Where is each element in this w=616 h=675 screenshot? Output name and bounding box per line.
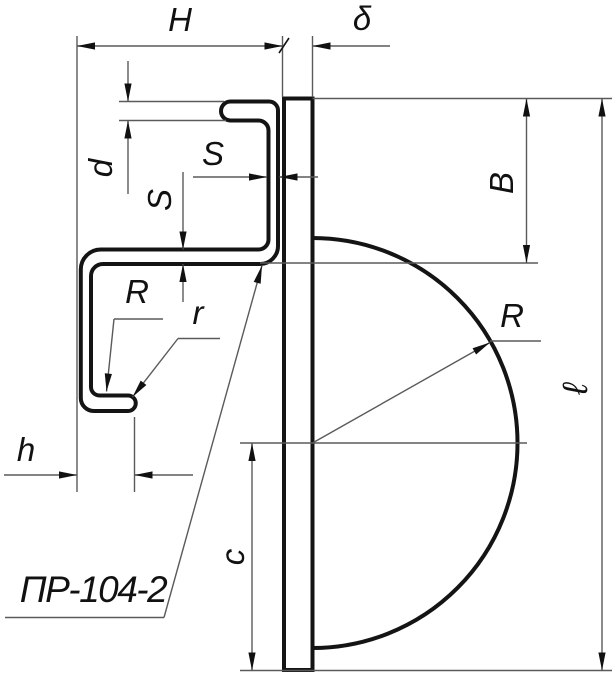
leader-R-disc: R: [313, 297, 542, 443]
mounting-plate: [284, 99, 313, 671]
drawing-sheet: H δ d S S R r h: [0, 0, 616, 675]
part-number-label: ПР-104-2: [20, 569, 168, 610]
dim-S-web: S: [193, 135, 318, 177]
profile-cross-section: [81, 102, 278, 412]
label-l: ℓ: [556, 382, 595, 396]
label-B: B: [483, 172, 520, 194]
leader-R-profile: R: [107, 273, 164, 392]
dim-delta: δ: [313, 0, 391, 97]
label-c: c: [214, 548, 251, 565]
label-S-flange: S: [141, 189, 178, 211]
label-R-profile: R: [125, 273, 149, 310]
label-r-profile: r: [193, 294, 206, 331]
dim-c: c: [214, 443, 252, 671]
label-S-web: S: [202, 135, 224, 172]
label-H: H: [168, 1, 192, 38]
dim-h: h: [4, 417, 193, 492]
leader-line: [133, 339, 179, 398]
label-d: d: [82, 157, 119, 177]
dim-d: d: [82, 61, 226, 194]
leader-line: [107, 319, 115, 392]
label-R-disc: R: [500, 297, 524, 334]
radius-line: [313, 343, 491, 444]
label-h: h: [17, 431, 35, 468]
dim-l: ℓ: [556, 99, 602, 671]
technical-drawing: H δ d S S R r h: [0, 0, 616, 675]
dim-B: B: [483, 99, 527, 264]
label-delta: δ: [353, 0, 372, 37]
